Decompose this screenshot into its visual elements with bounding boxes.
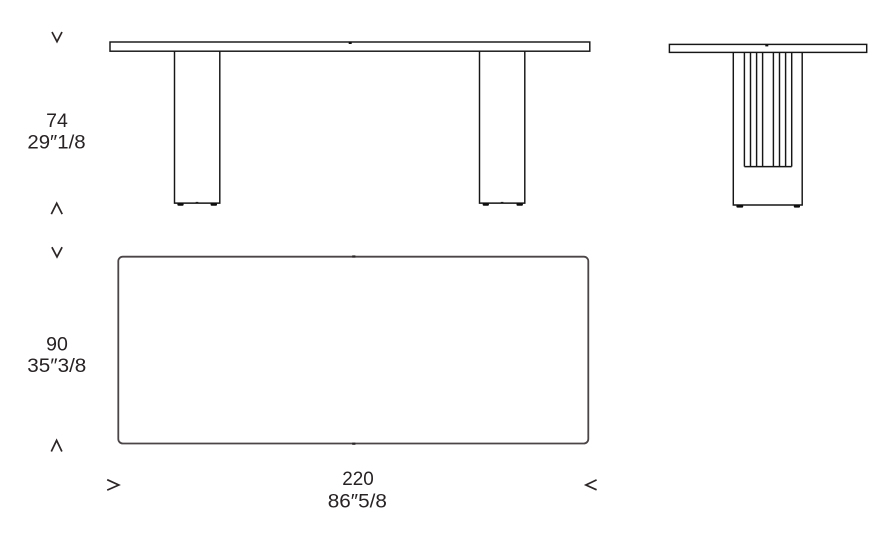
svg-text:74: 74 bbox=[46, 110, 68, 132]
svg-text:86″5/8: 86″5/8 bbox=[328, 491, 387, 513]
svg-text:35″3/8: 35″3/8 bbox=[27, 355, 86, 377]
svg-text:90: 90 bbox=[46, 333, 68, 355]
svg-text:220: 220 bbox=[342, 468, 374, 490]
svg-text:29″1/8: 29″1/8 bbox=[27, 131, 85, 153]
